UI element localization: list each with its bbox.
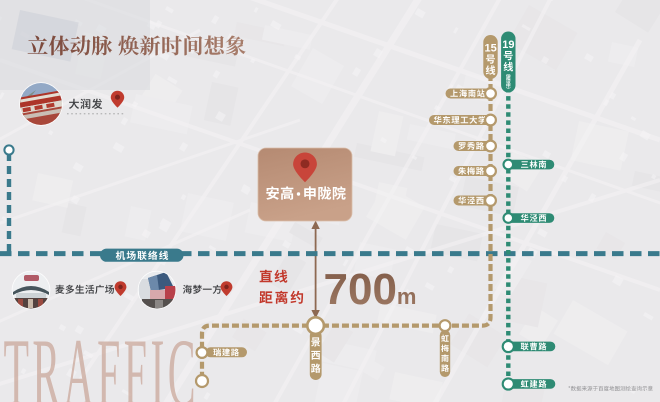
svg-text:TRAFFIC: TRAFFIC xyxy=(3,320,199,402)
svg-text:19: 19 xyxy=(502,39,514,51)
svg-text:15: 15 xyxy=(484,43,496,55)
